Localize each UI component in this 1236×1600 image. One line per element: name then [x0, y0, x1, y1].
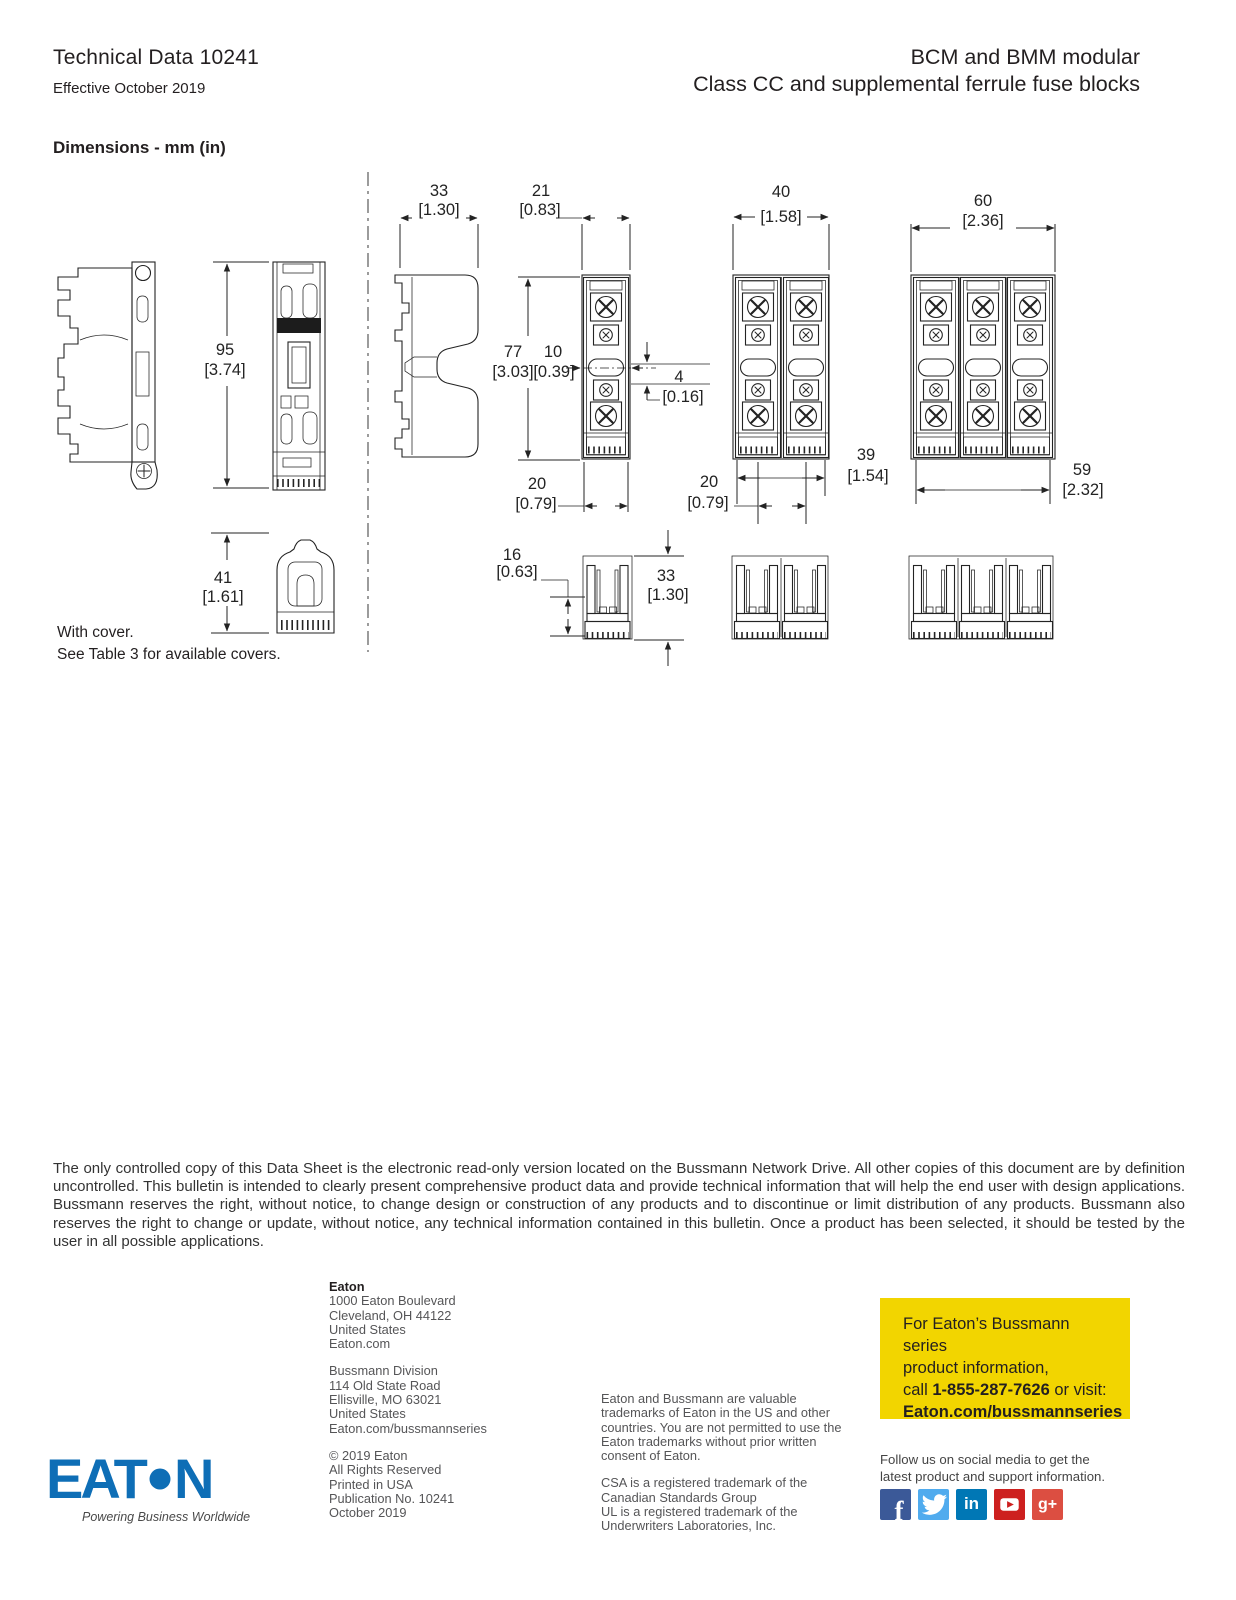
trademarks-paragraph2: CSA is a registered trademark of the Can…: [601, 1476, 857, 1505]
dim-value-in: [1.30]: [418, 201, 459, 219]
social-icons: f in g+: [880, 1489, 1063, 1520]
fuse-block-2pole-front: [733, 275, 829, 459]
dimension-drawings: 95 [3.74] 41 [1.61] 33 [1.30]: [0, 0, 1236, 700]
copyright-block: © 2019 Eaton All Rights Reserved Printed…: [329, 1449, 487, 1520]
address-line: 114 Old State Road: [329, 1379, 487, 1393]
social-caption-line1: Follow us on social media to get the: [880, 1451, 1105, 1468]
trademarks-column: Eaton and Bussmann are valuable trademar…: [601, 1392, 857, 1534]
dim-width-20-single: 20 [0.79]: [515, 462, 628, 513]
promo-line1: For Eaton’s Bussmann series: [903, 1313, 1114, 1357]
eaton-wordmark: EAT: [46, 1448, 148, 1508]
promo-call-prefix: call: [903, 1381, 932, 1399]
address-line: United States: [329, 1323, 487, 1337]
promo-box: For Eaton’s Bussmann series product info…: [880, 1298, 1130, 1419]
dim-value-in: [0.79]: [515, 495, 556, 513]
fuse-block-3pole-top: [909, 556, 1053, 639]
dim-height-41: 41 [1.61]: [202, 533, 269, 633]
dim-value-mm: 4: [674, 368, 683, 386]
dim-value-mm: 20: [700, 473, 718, 491]
dim-value-in: [3.03]: [492, 363, 533, 381]
dim-value-in: [3.74]: [204, 361, 245, 379]
cover-note-line2: See Table 3 for available covers.: [57, 644, 281, 666]
dim-value-mm: 39: [857, 446, 875, 464]
dim-value-mm: 20: [528, 475, 546, 493]
address-line: Ellisville, MO 63021: [329, 1393, 487, 1407]
dim-value-in: [2.32]: [1062, 481, 1103, 499]
bussmann-website-link[interactable]: Eaton.com/bussmannseries: [329, 1422, 487, 1436]
dim-value-mm: 33: [657, 567, 675, 585]
promo-call-suffix: or visit:: [1050, 1381, 1107, 1399]
copyright-line: © 2019 Eaton: [329, 1449, 487, 1463]
google-plus-icon[interactable]: g+: [1032, 1489, 1063, 1520]
dim-value-in: [1.58]: [760, 208, 801, 226]
dim-width-60: 60 [2.36]: [911, 192, 1055, 272]
dim-value-mm: 16: [503, 546, 521, 564]
dim-width-20-double: 20 [0.79]: [687, 462, 806, 524]
linkedin-icon[interactable]: in: [956, 1489, 987, 1520]
dim-value-mm: 40: [772, 183, 790, 201]
address-line: United States: [329, 1407, 487, 1421]
cover-note: With cover. See Table 3 for available co…: [57, 622, 281, 665]
dim-value-in: [0.63]: [496, 563, 537, 581]
side-profile-view: [395, 275, 478, 457]
eaton-wordmark-n: N: [174, 1448, 214, 1508]
dim-value-in: [0.16]: [662, 388, 703, 406]
dim-height-4: 4 [0.16]: [631, 342, 710, 406]
google-plus-glyph: g+: [1032, 1496, 1063, 1514]
promo-phone-number: 1-855-287-7626: [932, 1381, 1049, 1399]
disclaimer-paragraph: The only controlled copy of this Data Sh…: [53, 1160, 1185, 1251]
side-view-with-cover: [58, 262, 157, 489]
copyright-line: October 2019: [329, 1506, 487, 1520]
eaton-website-link[interactable]: Eaton.com: [329, 1337, 487, 1351]
dim-value-in: [1.30]: [647, 586, 688, 604]
promo-line3: call 1-855-287-7626 or visit:: [903, 1379, 1114, 1401]
front-view-with-cover: [273, 262, 325, 490]
eaton-tagline: Powering Business Worldwide: [82, 1510, 250, 1524]
address-line: Cleveland, OH 44122: [329, 1309, 487, 1323]
copyright-line: All Rights Reserved: [329, 1463, 487, 1477]
dim-height-16: 16 [0.63]: [496, 546, 585, 636]
eaton-logo: EAT N: [44, 1448, 264, 1508]
promo-website-link[interactable]: Eaton.com/bussmannseries: [903, 1401, 1114, 1423]
fuse-block-1pole-top: [583, 556, 632, 639]
linkedin-glyph: in: [956, 1494, 987, 1514]
dim-value-mm: 95: [216, 341, 234, 359]
dim-value-in: [0.79]: [687, 494, 728, 512]
dim-value-in: [0.39]: [533, 363, 574, 381]
fuse-block-3pole-front: [911, 275, 1055, 459]
dim-value-mm: 21: [532, 182, 550, 200]
dim-value-in: [1.61]: [202, 588, 243, 606]
facebook-glyph: f: [887, 1496, 911, 1520]
dim-height-33-cover: 33 [1.30]: [634, 530, 689, 666]
division-name: Bussmann Division: [329, 1364, 487, 1378]
cover-note-line1: With cover.: [57, 622, 281, 644]
dim-value-in: [2.36]: [962, 212, 1003, 230]
twitter-icon[interactable]: [918, 1489, 949, 1520]
fuse-block-2pole-top: [732, 556, 828, 639]
facebook-icon[interactable]: f: [880, 1489, 911, 1520]
trademarks-paragraph1: Eaton and Bussmann are valuable trademar…: [601, 1392, 857, 1463]
promo-line2: product information,: [903, 1357, 1114, 1379]
social-caption-line2: latest product and support information.: [880, 1468, 1105, 1485]
dim-value-in: [0.83]: [519, 201, 560, 219]
copyright-line: Publication No. 10241: [329, 1492, 487, 1506]
dim-width-21: 21 [0.83]: [519, 182, 630, 270]
dim-value-in: [1.54]: [847, 467, 888, 485]
datasheet-page: Technical Data 10241 Effective October 2…: [0, 0, 1236, 1600]
dim-value-mm: 10: [544, 343, 562, 361]
address-line: 1000 Eaton Boulevard: [329, 1294, 487, 1308]
cover-end-view: [277, 540, 334, 633]
eaton-logo-dot: [150, 1469, 171, 1490]
bussmann-division-address: Bussmann Division 114 Old State Road Ell…: [329, 1364, 487, 1435]
copyright-line: Printed in USA: [329, 1478, 487, 1492]
dim-value-mm: 60: [974, 192, 992, 210]
company-name: Eaton: [329, 1280, 487, 1294]
dim-width-33: 33 [1.30]: [400, 182, 478, 268]
dim-height-95: 95 [3.74]: [204, 262, 269, 488]
youtube-icon[interactable]: [994, 1489, 1025, 1520]
social-caption: Follow us on social media to get the lat…: [880, 1451, 1105, 1485]
dim-width-59: 59 [2.32]: [916, 460, 1104, 504]
dim-value-mm: 77: [504, 343, 522, 361]
dim-value-mm: 41: [214, 569, 232, 587]
dim-width-40: 40 [1.58]: [733, 183, 829, 270]
dim-value-mm: 59: [1073, 461, 1091, 479]
trademarks-paragraph3: UL is a registered trademark of the Unde…: [601, 1505, 857, 1534]
twitter-bird: [918, 1489, 949, 1520]
eaton-hq-address: Eaton 1000 Eaton Boulevard Cleveland, OH…: [329, 1280, 487, 1351]
address-column: Eaton 1000 Eaton Boulevard Cleveland, OH…: [329, 1280, 487, 1533]
fuse-block-1pole-front: [582, 275, 630, 459]
youtube-play: [994, 1489, 1025, 1520]
dim-value-mm: 33: [430, 182, 448, 200]
